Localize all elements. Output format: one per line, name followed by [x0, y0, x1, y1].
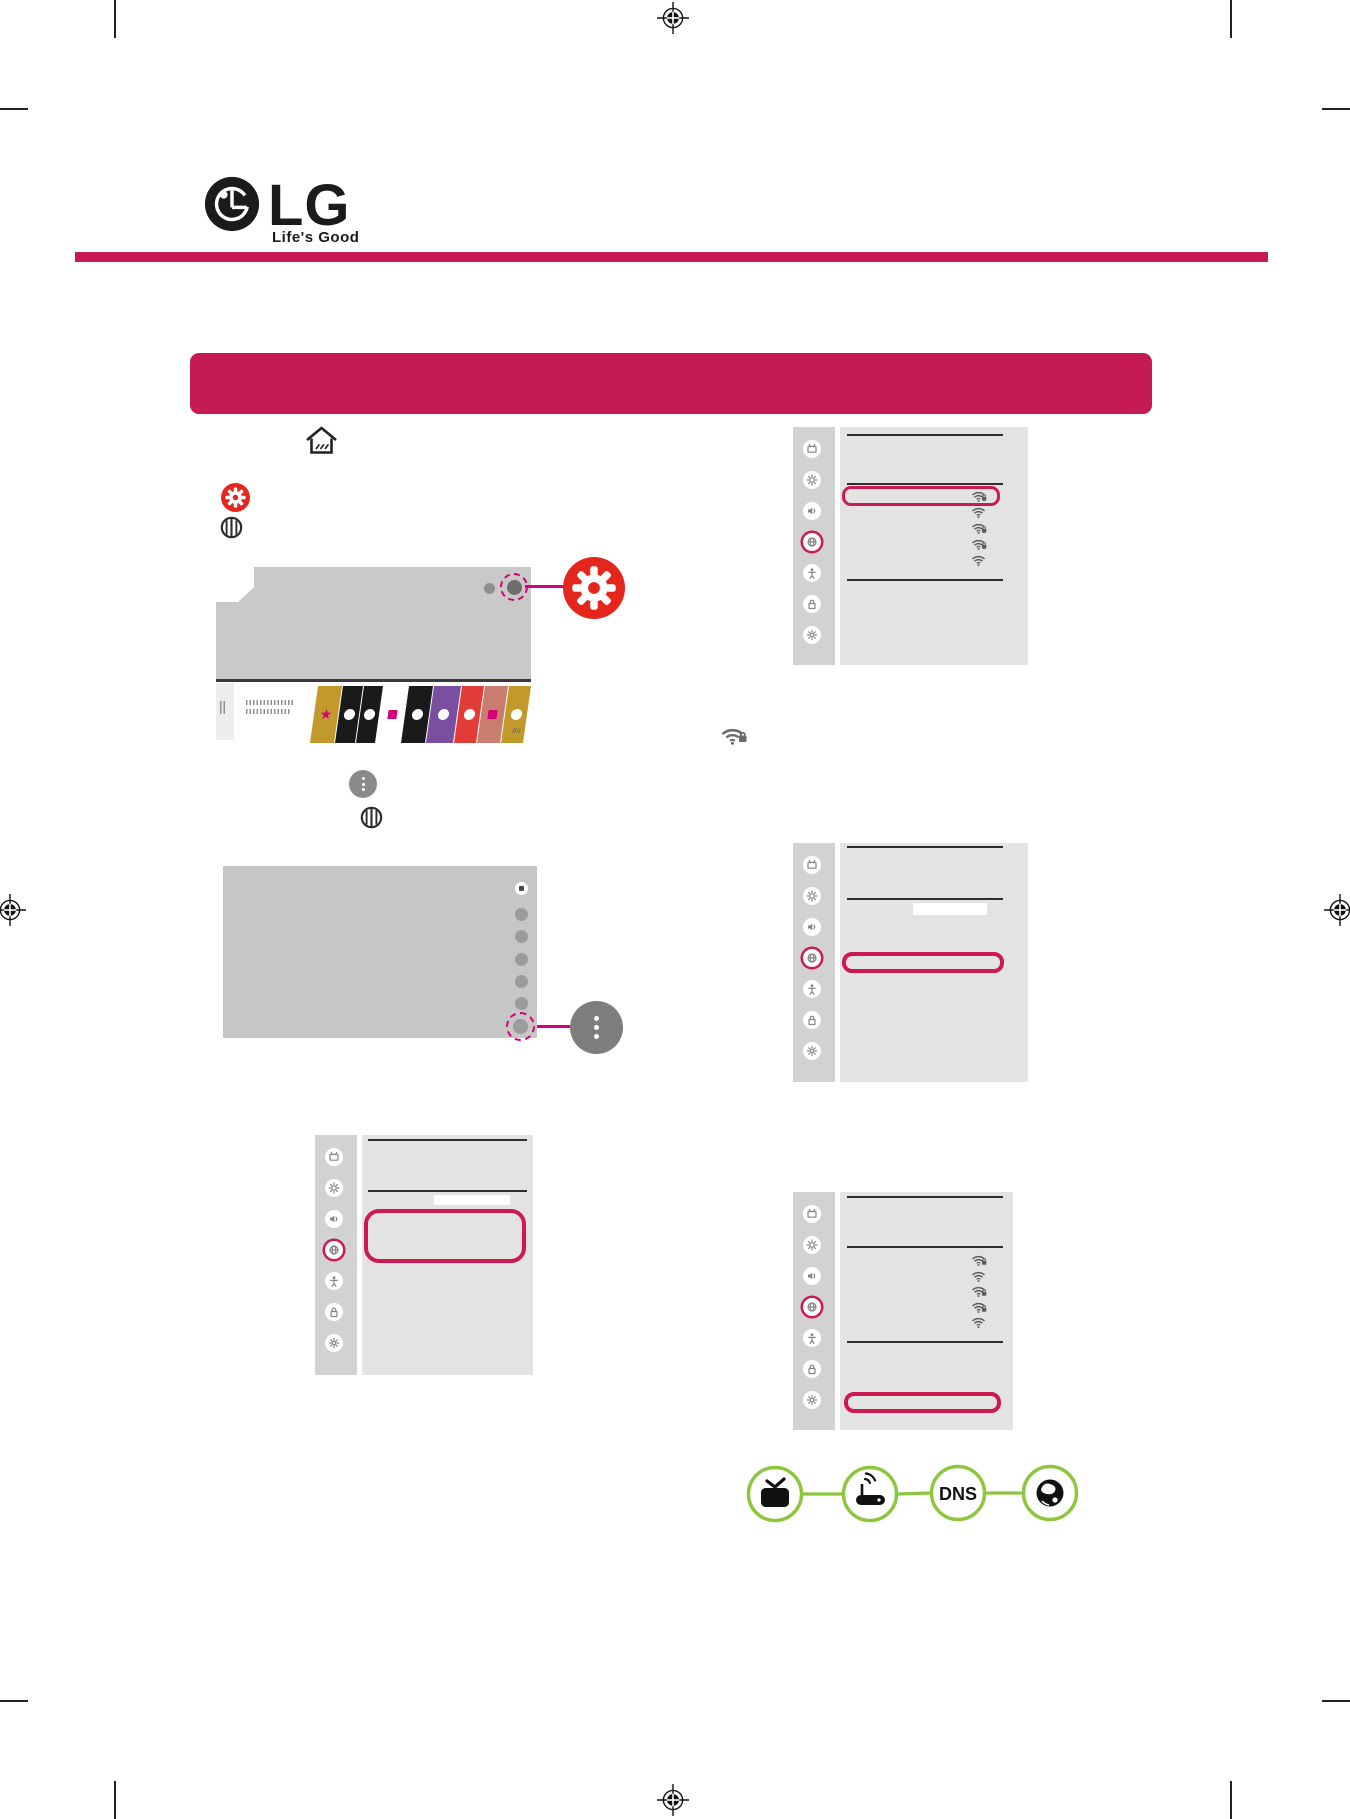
sidebar-lock-icon[interactable] [803, 595, 821, 613]
dot-glyph [437, 709, 450, 720]
launcher-live-tv-card[interactable] [235, 683, 309, 740]
quickmenu-item[interactable] [515, 997, 528, 1010]
callout-line-more [537, 1025, 570, 1028]
sidebar-general-icon[interactable] [325, 1334, 343, 1352]
sidebar-lock-icon[interactable] [803, 1360, 821, 1378]
dot-glyph [510, 709, 523, 720]
crop-mark-left-bottom [0, 1700, 28, 1702]
card-text-placeholder [246, 700, 294, 705]
crop-mark-left-top [0, 108, 28, 110]
sidebar-network-icon[interactable] [803, 1298, 821, 1316]
sidebar-sound-icon[interactable] [325, 1210, 343, 1228]
sidebar-network-icon[interactable] [803, 533, 821, 551]
lg-emblem-icon [203, 175, 261, 233]
settings-panel-wifi-list [793, 427, 1028, 665]
sidebar-picture-icon[interactable] [803, 1236, 821, 1254]
sidebar-picture-icon[interactable] [803, 887, 821, 905]
dns-label: DNS [939, 1484, 977, 1504]
sidebar-channels-icon[interactable] [803, 856, 821, 874]
square-glyph [387, 710, 397, 719]
lg-tagline: Life's Good [272, 229, 359, 246]
quickmenu-item[interactable] [515, 930, 528, 943]
scroll-wheel-icon [359, 805, 384, 830]
av-input-label: AV [512, 728, 521, 735]
network-status-button[interactable] [434, 1195, 510, 1205]
callout-line-gear [525, 585, 567, 588]
quickmenu-item[interactable] [515, 953, 528, 966]
settings-panel-network-block [315, 1135, 533, 1375]
settings-gear-callout-icon[interactable] [563, 557, 625, 619]
network-status-button[interactable] [913, 903, 987, 915]
card-text-placeholder [246, 709, 291, 714]
sidebar-sound-icon[interactable] [803, 502, 821, 520]
manual-page: LG Life's Good [0, 0, 1350, 1819]
dot-glyph [363, 709, 376, 720]
sidebar-lock-icon[interactable] [325, 1303, 343, 1321]
sidebar-channels-icon[interactable] [803, 1205, 821, 1223]
home-icon [303, 425, 340, 457]
wifi-network-row[interactable] [971, 1316, 987, 1334]
tv-screen-area [216, 567, 531, 682]
settings-dot-highlight-ring [500, 573, 528, 601]
launcher-app-tiles: ★ [310, 686, 531, 743]
dot-glyph [463, 709, 476, 720]
quickmenu-item[interactable] [515, 975, 528, 988]
sidebar-sound-icon[interactable] [803, 1267, 821, 1285]
dns-node: DNS [932, 1467, 985, 1520]
sidebar-network-icon[interactable] [325, 1241, 343, 1259]
sidebar-general-icon[interactable] [803, 1391, 821, 1409]
sidebar-lock-icon[interactable] [803, 1011, 821, 1029]
registration-mark-bottom-center [657, 1784, 689, 1819]
registration-mark-left-middle [0, 894, 26, 931]
internet-node [1024, 1467, 1077, 1520]
sidebar-accessibility-icon[interactable] [325, 1272, 343, 1290]
sidebar-picture-icon[interactable] [803, 471, 821, 489]
sidebar-accessibility-icon[interactable] [803, 980, 821, 998]
section-title-bar [190, 353, 1152, 414]
registration-mark-right-middle [1324, 894, 1350, 931]
registration-mark-top-center [657, 2, 689, 39]
quickmenu-item[interactable] [515, 908, 528, 921]
sidebar-accessibility-icon[interactable] [803, 1329, 821, 1347]
launcher-edge-card [216, 683, 234, 740]
sidebar-channels-icon[interactable] [325, 1148, 343, 1166]
launcher-ribbon: ★ AV [216, 679, 531, 746]
settings-gear-icon [221, 483, 250, 512]
tv-node [749, 1468, 802, 1521]
dot-glyph [343, 709, 356, 720]
record-icon[interactable] [515, 882, 528, 895]
star-glyph: ★ [319, 708, 334, 722]
screen-corner-notch [216, 567, 254, 602]
header-rule [75, 252, 1268, 262]
highlighted-menu-block[interactable] [364, 1209, 526, 1263]
sidebar-channels-icon[interactable] [803, 440, 821, 458]
sidebar-general-icon[interactable] [803, 1042, 821, 1060]
secured-wifi-icon [720, 726, 748, 745]
globe-icon [1037, 1480, 1064, 1507]
scroll-wheel-icon [219, 515, 244, 540]
crop-mark-top-right [1230, 0, 1232, 38]
settings-panel-wifi-advanced [793, 1192, 1013, 1430]
sidebar-general-icon[interactable] [803, 626, 821, 644]
tv-mockup-launcher: ★ AV [216, 567, 531, 746]
dot-glyph [411, 709, 424, 720]
sidebar-accessibility-icon[interactable] [803, 564, 821, 582]
network-connection-diagram: DNS [744, 1462, 1089, 1528]
crop-mark-right-bottom [1322, 1700, 1350, 1702]
crop-mark-bottom-right [1230, 1781, 1232, 1819]
crop-mark-top-left [114, 0, 116, 38]
sidebar-network-icon[interactable] [803, 949, 821, 967]
more-options-callout-icon[interactable] [570, 1001, 623, 1054]
settings-panel-network-menu [793, 843, 1028, 1082]
router-node [844, 1468, 897, 1521]
crop-mark-right-top [1322, 108, 1350, 110]
sidebar-sound-icon[interactable] [803, 918, 821, 936]
notifications-dot[interactable] [484, 583, 495, 594]
tv-mockup-quickmenu [223, 866, 537, 1038]
sidebar-picture-icon[interactable] [325, 1179, 343, 1197]
crop-mark-bottom-left [114, 1781, 116, 1819]
advanced-settings-row[interactable] [844, 1392, 1001, 1413]
highlighted-menu-row[interactable] [842, 952, 1004, 973]
wifi-network-row[interactable] [971, 554, 987, 572]
more-options-icon [349, 770, 377, 798]
square-glyph [487, 710, 497, 719]
more-options-highlight-ring [506, 1012, 535, 1041]
